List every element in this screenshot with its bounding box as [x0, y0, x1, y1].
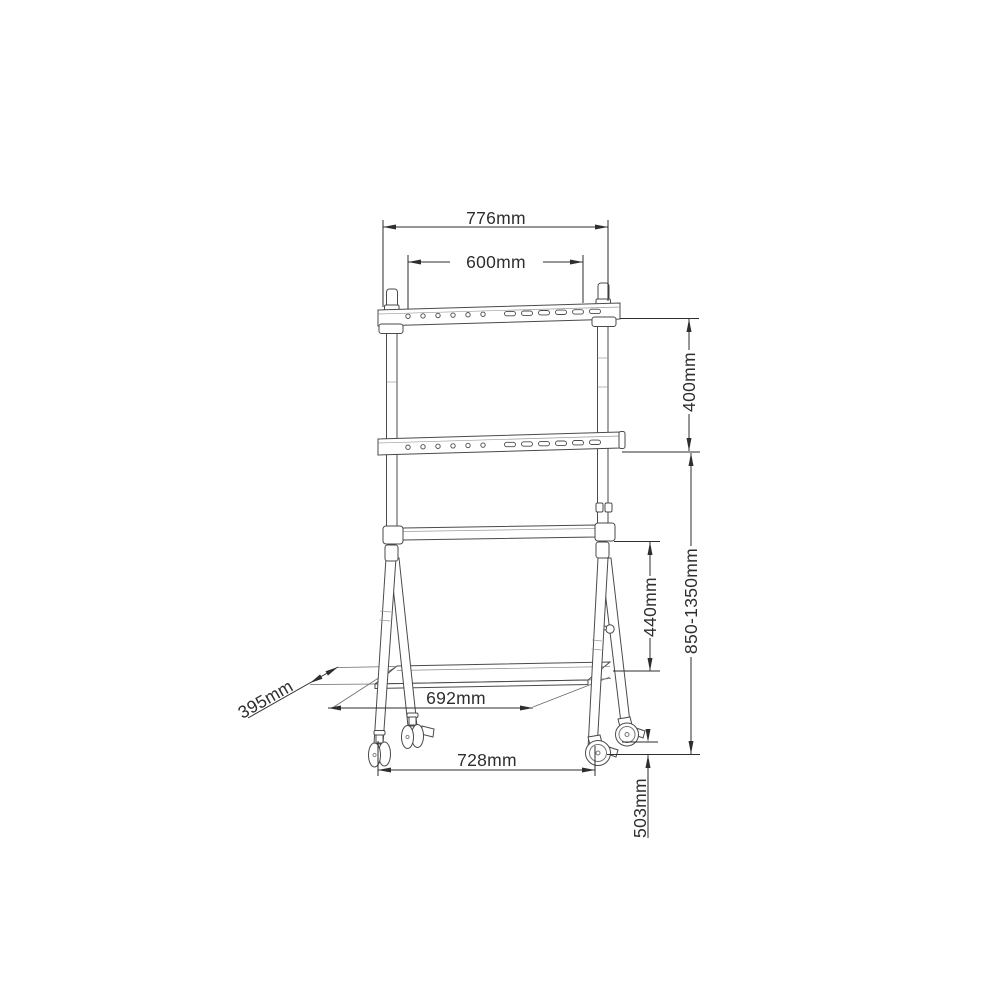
- leg-knob: [606, 625, 614, 633]
- caster-back-left: [402, 713, 435, 749]
- left-leg-hinge: [385, 545, 398, 561]
- dim-label-vesa-height: 400mm: [679, 352, 699, 412]
- right-front-leg: [588, 558, 608, 749]
- dim-label-crossbar-to-shelf: 440mm: [640, 577, 660, 637]
- caster-front-left: [369, 731, 391, 768]
- dim-label-height-range: 850-1350mm: [681, 548, 701, 654]
- top-mount-bar: [378, 283, 620, 334]
- middle-mount-bar: [378, 432, 625, 456]
- right-leg-hinge: [596, 542, 609, 558]
- right-post: [598, 326, 609, 524]
- left-post-collar: [379, 324, 403, 334]
- dim-label-outer-width: 776mm: [466, 208, 526, 228]
- dim-label-base-depth: 503mm: [630, 778, 650, 838]
- dim-label-front-wheel-span: 692mm: [426, 688, 486, 708]
- right-post-collar: [592, 317, 616, 327]
- dim-label-shelf-depth: 395mm: [235, 676, 297, 723]
- tv-cart-dimension-diagram: 776mm 600mm 400mm 850-1350mm 440mm 692mm…: [0, 0, 1000, 1000]
- left-post: [387, 333, 398, 529]
- left-front-leg: [374, 558, 396, 744]
- crossbar: [383, 523, 615, 544]
- technical-drawing-canvas: 776mm 600mm 400mm 850-1350mm 440mm 692mm…: [0, 0, 1000, 1000]
- dim-label-vesa-width: 600mm: [466, 252, 526, 272]
- dim-label-wheel-span: 728mm: [457, 750, 517, 770]
- right-junction-block: [595, 523, 615, 541]
- left-junction-block: [383, 526, 403, 544]
- caster-front-right: [586, 735, 619, 766]
